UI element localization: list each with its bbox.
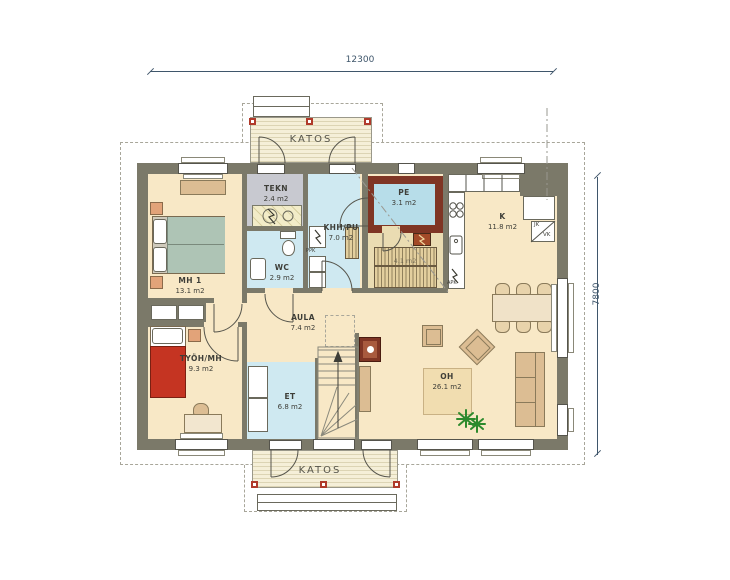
pillow [152,328,183,344]
wall [362,288,448,293]
room-label-oh: OH 26.1 m2 [422,373,472,391]
room-area: 7.0 m2 [316,235,366,242]
door-opening-tekn [257,164,285,174]
nightstand [150,202,163,215]
wall [308,288,322,293]
room-area: 11.8 m2 [480,224,525,231]
stair-headroom-outline [325,315,355,347]
closet-mh1 [151,305,177,320]
sofa-cushion-line [516,377,535,378]
room-area: 2.9 m2 [262,275,302,282]
dishwasher-label: APK [447,281,457,286]
wall [242,327,247,439]
window-sill [181,157,225,163]
fireplace-flue [367,346,374,353]
room-label-k: K 11.8 m2 [480,213,525,231]
porch-post [393,481,400,488]
room-label-sauna: 4.1 m2 [385,258,425,265]
pillow [153,247,167,272]
dimension-tick [550,68,557,75]
room-area: 13.1 m2 [160,288,220,295]
dining-chair [495,321,510,333]
porch-top-label: KATOS [270,134,352,145]
khh-cabinet [309,256,326,272]
dining-chair [516,321,531,333]
bed-cover [167,217,225,273]
window-sill [480,157,522,163]
room-name: OH [422,373,472,381]
floor-plan: 12300 7800 KATOS KATOS [0,0,730,580]
kitchen-tall-cabinet [523,196,555,220]
porch-bottom-step-line [257,502,397,503]
room-label-mh1: MH 1 13.1 m2 [160,277,220,295]
sofa-cushion-line [516,402,535,403]
window [178,163,228,174]
dining-table [492,294,553,322]
wall [352,288,362,293]
window [417,439,473,450]
room-area: 3.1 m2 [384,200,424,207]
room-area: 26.1 m2 [422,384,472,391]
sauna-stove [413,233,431,246]
window [313,439,355,450]
room-name: TEKN [250,185,302,193]
wall [293,288,308,293]
room-label-tekn: TEKN 2.4 m2 [250,185,302,203]
room-name: ET [268,393,312,401]
wall [242,174,247,303]
window-sill [420,450,470,456]
desk [184,414,222,433]
porch-top-step-line [253,106,310,107]
window [557,404,568,436]
window [557,278,568,358]
room-area: 2.4 m2 [250,196,302,203]
sofa [515,352,545,427]
room-label-tyoh: TYÖH/MH 9.3 m2 [171,355,231,373]
door-opening-khh [329,164,356,174]
window-sill [568,283,574,353]
dimension-height-label: 7800 [592,274,602,314]
room-area: 9.3 m2 [171,366,231,373]
bed-cover-line [167,244,224,245]
room-name: AULA [278,314,328,322]
porch-post [320,481,327,488]
toilet-icon [282,240,295,256]
dimension-width-label: 12300 [330,55,390,65]
nightstand [188,329,201,342]
freezer-label: VK [543,233,550,239]
room-name: TYÖH/MH [171,355,231,363]
room-label-khh: KHH/PU 7.0 m2 [316,224,366,242]
water-heater [252,205,302,227]
sideboard [359,366,371,412]
room-name: K [480,213,525,221]
window-sill [482,174,520,179]
dresser [180,180,226,195]
pillow [153,219,167,244]
dimension-right-line [597,177,598,455]
toilet-icon [280,231,296,239]
room-name: PE [384,189,424,197]
dining-chair [537,321,552,333]
dimension-top-line [150,71,553,72]
window-sill [481,450,531,456]
room-label-et: ET 6.8 m2 [268,393,312,411]
porch-post [249,118,256,125]
room-name: WC [262,264,302,272]
room-name: KHH/PU [316,224,366,232]
room-area: 7.4 m2 [278,325,328,332]
wall [247,288,265,293]
window-sill [180,433,223,439]
room-label-wc: WC 2.9 m2 [262,264,302,282]
closet-et [248,366,268,398]
wall [303,174,308,288]
window [478,439,534,450]
room-name: MH 1 [160,277,220,285]
armchair-cushion [426,329,441,345]
desk-chair [193,403,209,415]
window-sill [183,174,223,179]
sauna-door-gap [382,226,400,234]
window [175,439,228,450]
stair-wall [315,358,318,439]
porch-post [306,118,313,125]
sauna-bench-lower [374,266,437,288]
sofa-back-line [535,353,536,426]
closet-mh1 [178,305,204,320]
room-label-pe: PE 3.1 m2 [384,189,424,207]
khh-cabinet [309,272,326,288]
door-opening-oh [361,440,392,450]
kitchen-corner-wall [520,163,568,196]
window-sill [568,408,574,432]
room-label-aula: AULA 7.4 m2 [278,314,328,332]
dimension-tick [594,450,601,457]
porch-bottom-label: KATOS [280,465,360,476]
washer-label: PPK [306,249,315,254]
kitchen-counter-left [448,192,465,289]
fridge-label: JK [534,223,539,229]
porch-post [364,118,371,125]
room-area: 6.8 m2 [268,404,312,411]
window-sill [551,284,557,352]
closet-et [248,398,268,432]
window-sill [178,450,225,456]
porch-post [251,481,258,488]
window [398,163,415,174]
door-opening-et [269,440,302,450]
window [477,163,525,174]
room-area: 4.1 m2 [385,258,425,265]
